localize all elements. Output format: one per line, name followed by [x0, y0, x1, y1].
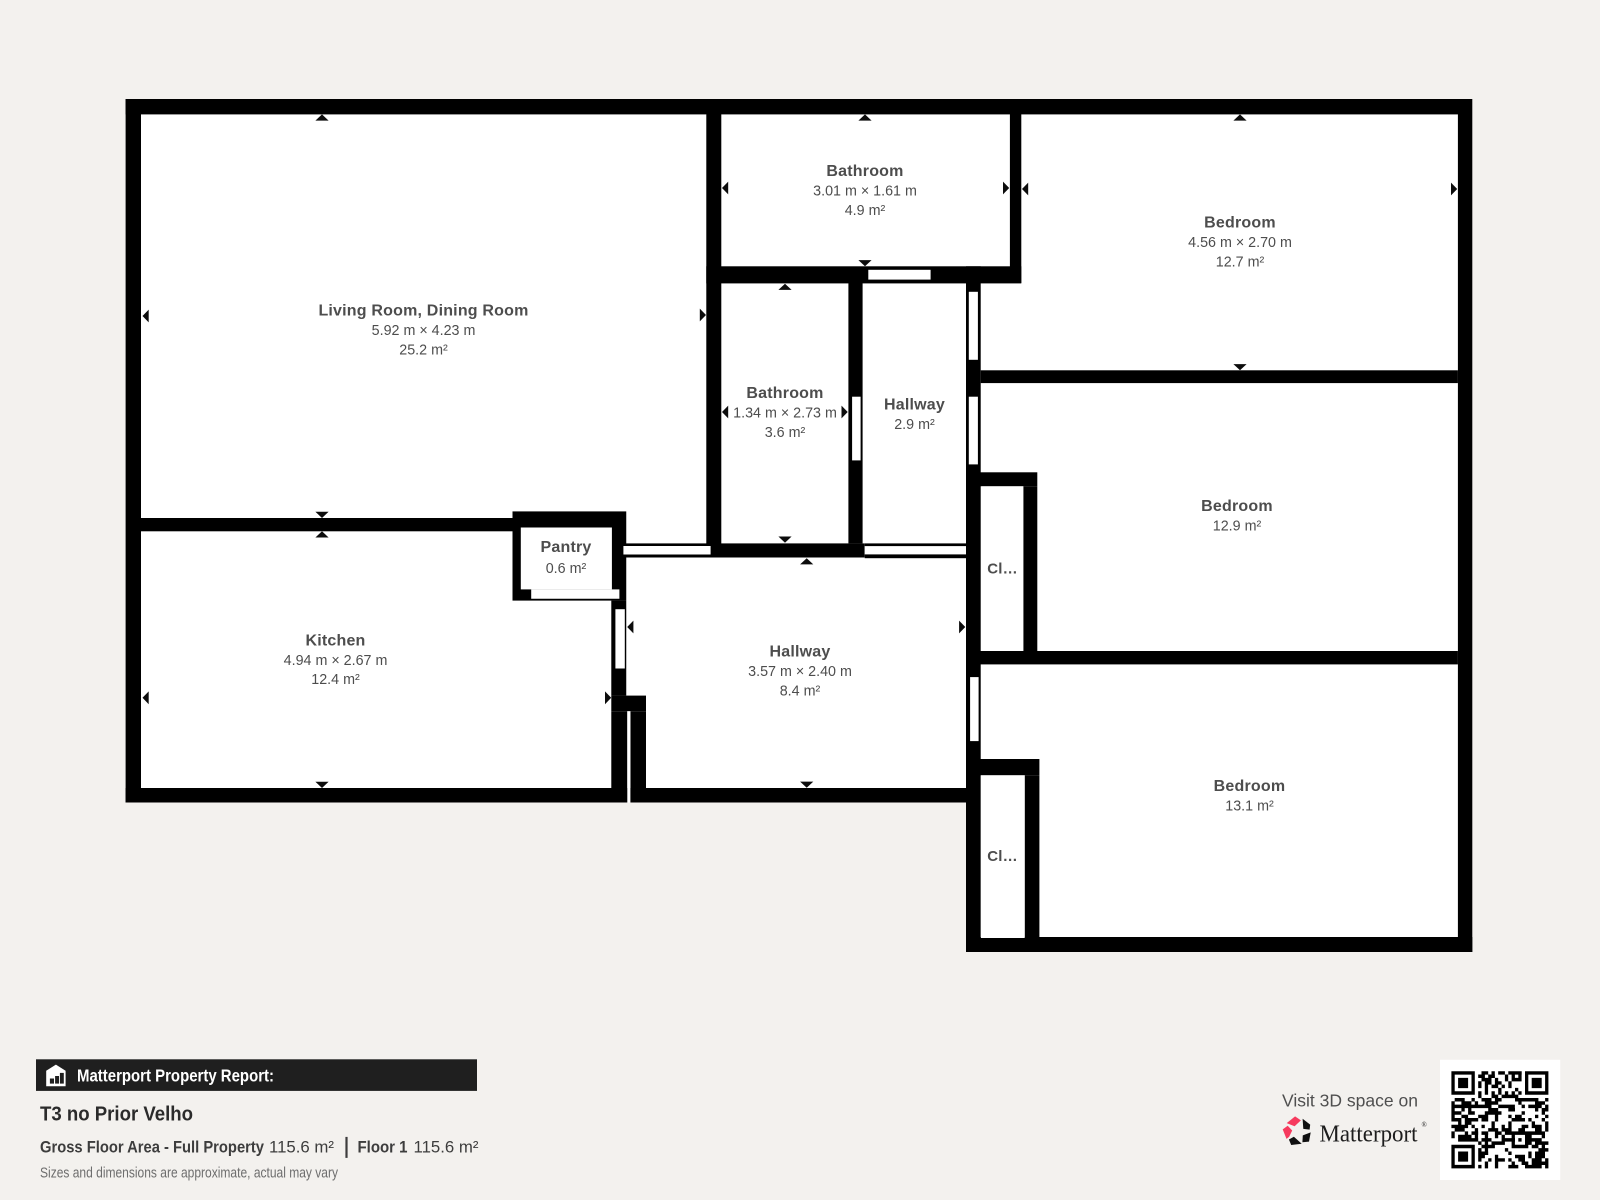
svg-text:0.6 m²: 0.6 m²	[546, 561, 587, 577]
svg-text:Matterport: Matterport	[1320, 1120, 1418, 1147]
svg-text:Gross Floor Area - Full Proper: Gross Floor Area - Full Property	[40, 1138, 265, 1157]
svg-text:115.6 m²: 115.6 m²	[269, 1138, 334, 1157]
svg-text:12.9 m²: 12.9 m²	[1213, 519, 1262, 535]
svg-text:Cl…: Cl…	[987, 848, 1018, 865]
svg-text:4.56 m × 2.70 m: 4.56 m × 2.70 m	[1188, 235, 1292, 251]
svg-text:1.34 m × 2.73 m: 1.34 m × 2.73 m	[733, 406, 837, 422]
svg-text:Visit 3D space on: Visit 3D space on	[1282, 1090, 1418, 1110]
svg-text:Hallway: Hallway	[770, 644, 831, 661]
svg-text:5.92 m × 4.23 m: 5.92 m × 4.23 m	[372, 323, 476, 339]
svg-text:13.1 m²: 13.1 m²	[1225, 799, 1274, 815]
svg-text:25.2 m²: 25.2 m²	[399, 342, 448, 358]
svg-text:8.4 m²: 8.4 m²	[780, 684, 821, 700]
svg-text:Bedroom: Bedroom	[1201, 498, 1273, 515]
svg-text:Cl…: Cl…	[987, 561, 1018, 578]
svg-text:12.7 m²: 12.7 m²	[1216, 255, 1265, 271]
svg-text:®: ®	[1422, 1121, 1428, 1129]
svg-text:Bathroom: Bathroom	[746, 385, 823, 402]
svg-text:T3 no Prior Velho: T3 no Prior Velho	[40, 1102, 193, 1125]
svg-text:Floor 1: Floor 1	[358, 1138, 408, 1157]
svg-text:Matterport Property Report:: Matterport Property Report:	[77, 1066, 274, 1086]
svg-text:Kitchen: Kitchen	[305, 633, 365, 650]
svg-text:3.57 m × 2.40 m: 3.57 m × 2.40 m	[748, 664, 852, 680]
svg-text:Bedroom: Bedroom	[1204, 215, 1276, 232]
svg-text:4.9 m²: 4.9 m²	[845, 203, 886, 219]
svg-text:Pantry: Pantry	[541, 539, 592, 556]
svg-text:4.94 m × 2.67 m: 4.94 m × 2.67 m	[284, 653, 388, 669]
svg-text:3.01 m × 1.61 m: 3.01 m × 1.61 m	[813, 184, 917, 200]
svg-text:12.4 m²: 12.4 m²	[311, 672, 360, 688]
svg-text:Bedroom: Bedroom	[1214, 778, 1286, 795]
svg-text:Bathroom: Bathroom	[826, 163, 903, 180]
svg-text:115.6 m²: 115.6 m²	[414, 1138, 479, 1157]
svg-text:2.9 m²: 2.9 m²	[894, 417, 935, 433]
svg-text:Sizes and dimensions are appro: Sizes and dimensions are approximate, ac…	[40, 1166, 339, 1182]
svg-text:Living Room, Dining Room: Living Room, Dining Room	[318, 303, 528, 320]
svg-text:Hallway: Hallway	[884, 397, 945, 414]
svg-text:3.6 m²: 3.6 m²	[765, 425, 806, 441]
